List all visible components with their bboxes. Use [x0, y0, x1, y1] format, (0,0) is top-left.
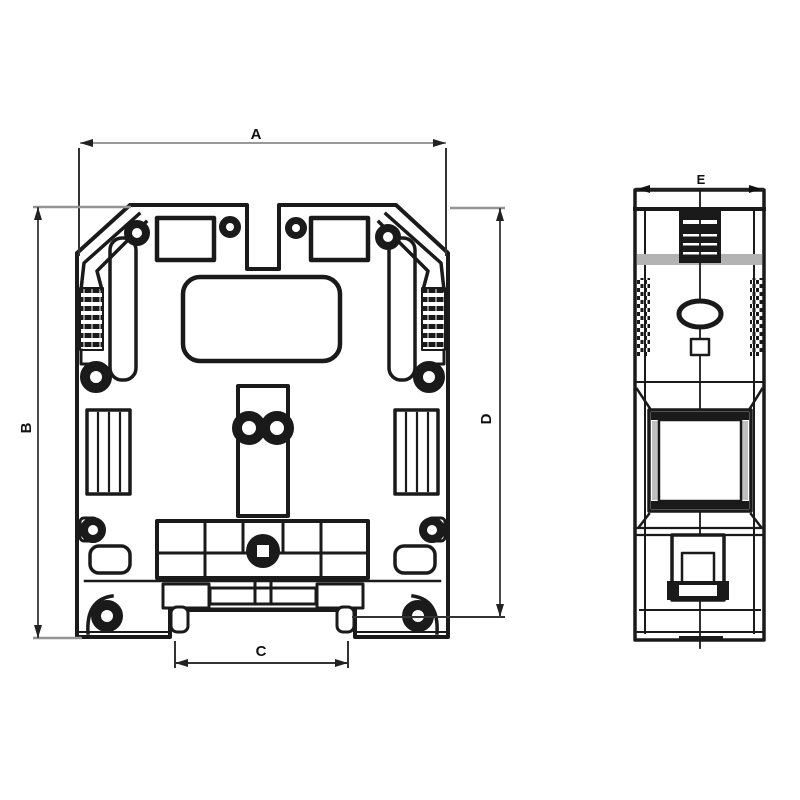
dimension-c-arrow-right	[335, 659, 348, 667]
terminal-opening-left	[157, 218, 214, 260]
dimension-b-label: B	[18, 422, 35, 433]
wire-entry-opening	[649, 410, 751, 511]
terminal-opening-right	[311, 218, 368, 260]
dimension-b-arrow-top	[34, 207, 42, 220]
foot-center-band	[210, 588, 316, 604]
knurl-strip-left	[636, 278, 650, 356]
dimension-a-arrow-left	[80, 139, 93, 147]
din-lip-left	[171, 607, 188, 632]
screw-inner-left	[223, 220, 238, 235]
terminal-block-dimension-drawing: A B C D E	[0, 0, 800, 800]
screw-inner-right	[289, 221, 304, 236]
dimension-d-label: D	[478, 413, 495, 424]
screw-top-right	[379, 228, 397, 246]
side-view	[635, 190, 764, 648]
marking-label-field	[183, 277, 340, 361]
dimension-c-label: C	[256, 643, 267, 660]
spring-hatch-right	[422, 288, 445, 350]
small-square-port	[691, 339, 709, 355]
dimension-a-arrow-right	[433, 139, 446, 147]
dimension-c-arrow-left	[175, 659, 188, 667]
din-lip-right	[337, 607, 354, 632]
jumper-socket-left	[237, 416, 261, 440]
drawing-page: A B C D E	[0, 0, 800, 800]
busbar-assembly	[157, 521, 368, 578]
jumper-shaft	[238, 386, 288, 516]
din-clamp	[667, 535, 729, 600]
foot-block-left	[163, 584, 209, 608]
front-view	[77, 205, 448, 637]
test-socket-oval	[679, 301, 721, 327]
knurl-strip-right	[750, 278, 764, 356]
rail-block-left	[87, 410, 130, 494]
dimension-a-label: A	[251, 126, 262, 143]
pivot-rivet-left	[85, 366, 107, 388]
jumper-socket-right	[265, 416, 289, 440]
dimension-e: E	[635, 172, 764, 193]
dimension-e-label: E	[697, 172, 706, 187]
dimension-b-arrow-bottom	[34, 625, 42, 638]
dimension-d-arrow-top	[496, 208, 504, 221]
rail-block-right	[395, 410, 438, 494]
spring-hatch-left	[80, 288, 103, 350]
dimension-c: C	[175, 641, 348, 668]
side-bottom-segment	[679, 636, 723, 641]
dimension-d-arrow-bottom	[496, 604, 504, 617]
screw-top-left	[128, 224, 146, 242]
pivot-rivet-right	[418, 366, 440, 388]
foot-block-right	[317, 584, 363, 608]
